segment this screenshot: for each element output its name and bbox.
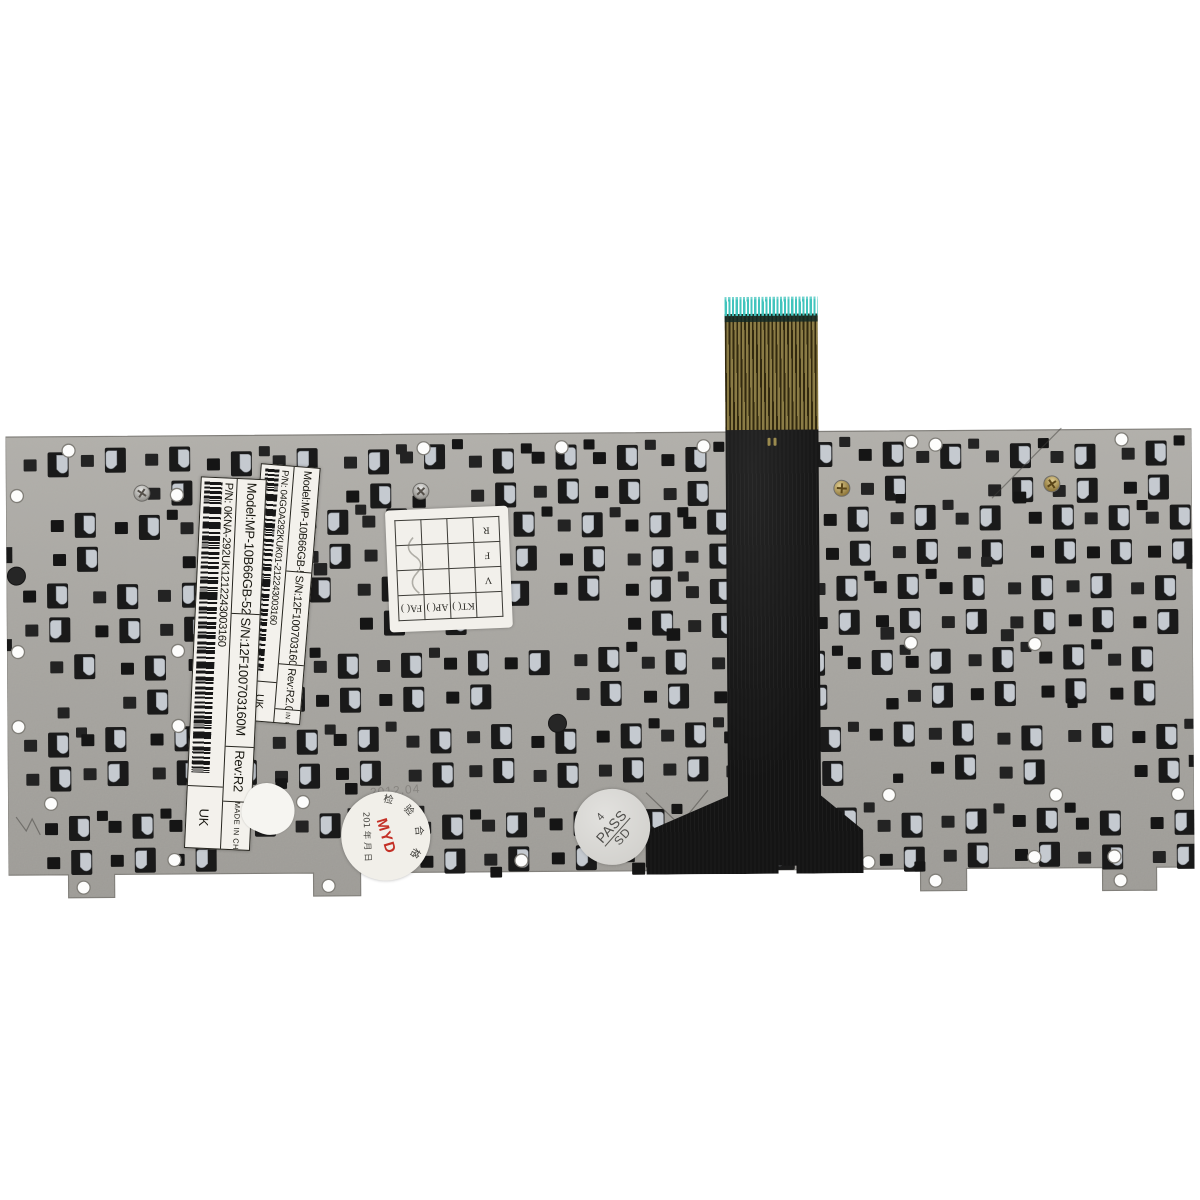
plate-hole bbox=[10, 490, 23, 503]
square-cutout bbox=[550, 818, 563, 830]
key-hook-cutout bbox=[668, 683, 689, 708]
key-hook-cutout bbox=[649, 512, 670, 537]
square-cutout bbox=[167, 510, 178, 520]
square-cutout bbox=[583, 439, 594, 449]
screw bbox=[833, 480, 850, 497]
plate-hole bbox=[170, 488, 183, 501]
key-hook-cutout bbox=[584, 546, 605, 571]
square-cutout bbox=[1146, 512, 1159, 524]
square-cutout bbox=[931, 762, 944, 774]
square-cutout bbox=[81, 455, 94, 467]
square-cutout bbox=[908, 690, 921, 702]
square-cutout bbox=[644, 691, 657, 703]
key-hook-cutout bbox=[514, 512, 535, 537]
square-cutout bbox=[360, 618, 373, 630]
square-cutout bbox=[880, 854, 893, 866]
square-cutout bbox=[886, 698, 898, 709]
square-cutout bbox=[452, 439, 463, 449]
key-hook-cutout bbox=[107, 761, 128, 786]
key-hook-cutout bbox=[470, 684, 491, 709]
key-hook-cutout bbox=[119, 618, 140, 643]
key-hook-cutout bbox=[820, 727, 841, 752]
square-cutout bbox=[956, 513, 969, 525]
square-cutout bbox=[467, 731, 480, 743]
plate-hole bbox=[172, 719, 185, 732]
key-hook-cutout bbox=[1055, 539, 1076, 564]
square-cutout bbox=[593, 452, 606, 464]
region-code: UK bbox=[185, 786, 223, 849]
square-cutout bbox=[469, 765, 482, 777]
key-hook-cutout bbox=[1156, 724, 1177, 749]
plate-hole bbox=[171, 644, 184, 657]
square-cutout bbox=[839, 437, 850, 447]
key-hook-cutout bbox=[360, 761, 381, 786]
square-cutout bbox=[1153, 851, 1166, 863]
square-cutout bbox=[671, 804, 682, 814]
key-hook-cutout bbox=[582, 512, 603, 537]
key-hook-cutout bbox=[650, 577, 671, 602]
square-cutout bbox=[1076, 818, 1089, 830]
square-cutout bbox=[95, 625, 108, 637]
key-hook-cutout bbox=[898, 574, 919, 599]
square-cutout bbox=[832, 646, 843, 656]
key-hook-cutout bbox=[1148, 474, 1169, 499]
made-in-text: MADE IN CHINA bbox=[275, 709, 301, 724]
key-hook-cutout bbox=[902, 813, 923, 838]
plate-hole bbox=[1115, 433, 1128, 446]
key-hook-cutout bbox=[310, 577, 331, 602]
cable-connector-teal-fingers bbox=[725, 296, 818, 316]
plate-hole bbox=[697, 440, 710, 453]
square-cutout bbox=[158, 590, 171, 602]
square-cutout bbox=[84, 768, 97, 780]
key-hook-cutout bbox=[848, 507, 869, 532]
square-cutout bbox=[325, 724, 336, 734]
square-cutout bbox=[1085, 512, 1098, 524]
square-cutout bbox=[661, 730, 674, 742]
key-hook-cutout bbox=[1039, 842, 1060, 867]
key-hook-cutout bbox=[980, 505, 1001, 530]
key-hook-cutout bbox=[1024, 759, 1045, 784]
square-cutout bbox=[981, 557, 992, 567]
square-cutout bbox=[531, 736, 544, 748]
key-hook-cutout bbox=[619, 479, 640, 504]
square-cutout bbox=[47, 857, 60, 869]
key-hook-cutout bbox=[117, 584, 138, 609]
square-cutout bbox=[859, 449, 872, 461]
square-cutout bbox=[1013, 815, 1026, 827]
square-cutout bbox=[1031, 546, 1044, 558]
key-hook-cutout bbox=[621, 723, 642, 748]
square-cutout bbox=[685, 551, 698, 563]
key-hook-cutout bbox=[688, 481, 709, 506]
square-cutout bbox=[667, 628, 681, 641]
key-hook-cutout bbox=[953, 721, 974, 746]
square-cutout bbox=[346, 491, 359, 503]
plate-hole bbox=[1114, 874, 1127, 887]
square-cutout bbox=[1124, 482, 1137, 494]
square-cutout bbox=[471, 490, 484, 502]
plate-hole bbox=[882, 788, 895, 801]
square-cutout bbox=[24, 459, 37, 471]
square-cutout bbox=[628, 553, 641, 565]
square-cutout bbox=[597, 731, 610, 743]
key-hook-cutout bbox=[338, 654, 359, 679]
square-cutout bbox=[160, 808, 171, 818]
key-hook-cutout bbox=[430, 728, 451, 753]
square-cutout bbox=[93, 591, 106, 603]
key-hook-cutout bbox=[444, 849, 465, 874]
square-cutout bbox=[1078, 852, 1091, 864]
key-hook-cutout bbox=[1032, 575, 1053, 600]
square-cutout bbox=[944, 850, 957, 862]
square-cutout bbox=[123, 697, 136, 709]
square-cutout bbox=[929, 728, 942, 740]
plate-hole bbox=[515, 854, 528, 867]
key-hook-cutout bbox=[50, 767, 71, 792]
square-cutout bbox=[893, 774, 903, 783]
key-hook-cutout bbox=[370, 483, 391, 508]
square-cutout bbox=[554, 583, 567, 595]
square-cutout bbox=[864, 802, 875, 812]
square-cutout bbox=[595, 486, 608, 498]
key-hook-cutout bbox=[169, 446, 190, 471]
square-cutout bbox=[111, 855, 124, 867]
key-hook-cutout bbox=[105, 727, 126, 752]
square-cutout bbox=[1087, 546, 1100, 558]
square-cutout bbox=[490, 867, 502, 878]
square-cutout bbox=[993, 803, 1004, 813]
square-cutout bbox=[150, 733, 163, 745]
square-cutout bbox=[81, 734, 94, 746]
key-hook-cutout bbox=[69, 816, 90, 841]
square-cutout bbox=[649, 718, 660, 728]
square-cutout bbox=[484, 854, 497, 866]
key-hook-cutout bbox=[147, 689, 168, 714]
square-cutout bbox=[632, 863, 645, 875]
key-hook-cutout bbox=[468, 650, 489, 675]
square-cutout bbox=[1041, 686, 1054, 698]
square-cutout bbox=[712, 657, 725, 669]
plate-hole bbox=[168, 853, 181, 866]
square-cutout bbox=[362, 516, 375, 528]
cable-connector-gold-traces bbox=[725, 313, 819, 430]
square-cutout bbox=[678, 571, 689, 581]
square-cutout bbox=[541, 506, 552, 516]
key-hook-cutout bbox=[1093, 607, 1114, 632]
square-cutout bbox=[878, 820, 891, 832]
square-cutout bbox=[534, 807, 545, 817]
square-cutout bbox=[358, 584, 371, 596]
square-cutout bbox=[50, 661, 63, 673]
square-cutout bbox=[316, 695, 329, 707]
square-cutout bbox=[683, 517, 696, 529]
square-cutout bbox=[180, 522, 193, 534]
square-cutout bbox=[663, 764, 676, 776]
square-cutout bbox=[400, 451, 413, 463]
square-cutout bbox=[848, 657, 861, 669]
square-cutout bbox=[429, 648, 440, 658]
plate-hole bbox=[77, 881, 90, 894]
square-cutout bbox=[24, 740, 37, 752]
serial-number: S/N:12F100703160M bbox=[226, 614, 260, 748]
square-cutout bbox=[469, 456, 482, 468]
square-cutout bbox=[914, 861, 925, 871]
key-hook-cutout bbox=[145, 655, 166, 680]
square-cutout bbox=[336, 768, 349, 780]
plate-hole bbox=[905, 435, 918, 448]
key-hook-cutout bbox=[601, 681, 622, 706]
pass-stamp: 4 PASS SD bbox=[574, 789, 651, 866]
square-cutout bbox=[574, 654, 587, 666]
square-cutout bbox=[870, 729, 883, 741]
square-cutout bbox=[51, 520, 64, 532]
plate-hole bbox=[1028, 850, 1041, 863]
stamp-date-line: 201 年 月 日 bbox=[360, 812, 373, 862]
square-cutout bbox=[599, 765, 612, 777]
key-hook-cutout bbox=[1109, 505, 1130, 530]
plate-hole bbox=[62, 444, 75, 457]
square-cutout bbox=[642, 657, 655, 669]
square-cutout bbox=[942, 616, 955, 628]
key-hook-cutout bbox=[836, 576, 857, 601]
square-cutout bbox=[1122, 448, 1135, 460]
square-cutout bbox=[314, 661, 327, 673]
square-cutout bbox=[1039, 652, 1052, 664]
key-hook-cutout bbox=[932, 683, 953, 708]
key-hook-cutout bbox=[493, 448, 514, 473]
key-hook-cutout bbox=[1053, 505, 1074, 530]
plate-hole bbox=[555, 441, 568, 454]
key-hook-cutout bbox=[930, 649, 951, 674]
key-hook-cutout bbox=[491, 724, 512, 749]
key-hook-cutout bbox=[75, 513, 96, 538]
square-cutout bbox=[334, 734, 347, 746]
plate-hole bbox=[904, 636, 917, 649]
square-cutout bbox=[997, 733, 1010, 745]
plate-hole bbox=[322, 879, 335, 892]
square-cutout bbox=[377, 660, 390, 672]
square-cutout bbox=[986, 450, 999, 462]
stamp-code: MYD bbox=[373, 816, 400, 856]
key-hook-cutout bbox=[74, 654, 95, 679]
square-cutout bbox=[1131, 582, 1144, 594]
round-inspection-stamp: 检 验 合 格 201 年 月 日 MYD bbox=[339, 790, 432, 883]
square-cutout bbox=[1068, 730, 1081, 742]
square-cutout bbox=[943, 500, 954, 510]
square-cutout bbox=[958, 547, 971, 559]
square-cutout bbox=[273, 737, 286, 749]
key-hook-cutout bbox=[966, 609, 987, 634]
square-cutout bbox=[941, 816, 954, 828]
square-cutout bbox=[534, 770, 547, 782]
square-cutout bbox=[365, 550, 378, 562]
key-hook-cutout bbox=[231, 451, 252, 476]
key-hook-cutout bbox=[1134, 680, 1155, 705]
key-hook-cutout bbox=[368, 449, 389, 474]
key-hook-cutout bbox=[529, 650, 550, 675]
square-cutout bbox=[968, 439, 979, 449]
square-cutout bbox=[505, 657, 518, 669]
key-hook-cutout bbox=[917, 539, 938, 564]
square-cutout bbox=[880, 627, 894, 640]
key-hook-cutout bbox=[1170, 504, 1191, 529]
plate-hole bbox=[929, 874, 942, 887]
square-cutout bbox=[874, 581, 887, 593]
key-hook-cutout bbox=[1074, 444, 1095, 469]
key-hook-cutout bbox=[617, 445, 638, 470]
square-cutout bbox=[259, 446, 270, 456]
square-cutout bbox=[558, 519, 571, 531]
square-cutout bbox=[23, 591, 36, 603]
square-cutout bbox=[891, 512, 904, 524]
square-cutout bbox=[1010, 616, 1023, 628]
key-hook-cutout bbox=[1090, 573, 1111, 598]
key-hook-cutout bbox=[1175, 810, 1195, 835]
plate-hole bbox=[1028, 637, 1041, 650]
square-cutout bbox=[58, 707, 70, 718]
key-hook-cutout bbox=[516, 546, 537, 571]
square-cutout bbox=[1184, 719, 1194, 729]
key-hook-cutout bbox=[968, 842, 989, 867]
square-cutout bbox=[97, 811, 108, 821]
key-hook-cutout bbox=[1159, 758, 1180, 783]
square-cutout bbox=[355, 505, 366, 515]
square-cutout bbox=[1091, 639, 1102, 649]
square-cutout bbox=[53, 554, 66, 566]
key-hook-cutout bbox=[883, 442, 904, 467]
key-hook-cutout bbox=[955, 754, 976, 779]
square-cutout bbox=[713, 717, 724, 727]
square-cutout bbox=[1108, 654, 1121, 666]
key-hook-cutout bbox=[707, 510, 728, 535]
square-cutout bbox=[406, 736, 419, 748]
square-cutout bbox=[45, 823, 58, 835]
square-cutout bbox=[626, 584, 639, 596]
plate-hole bbox=[12, 721, 25, 734]
key-hook-cutout bbox=[495, 482, 516, 507]
key-hook-cutout bbox=[493, 758, 514, 783]
square-cutout bbox=[940, 582, 953, 594]
key-hook-cutout bbox=[940, 444, 961, 469]
key-hook-cutout bbox=[196, 847, 217, 872]
square-cutout bbox=[446, 692, 459, 704]
key-hook-cutout bbox=[578, 576, 599, 601]
square-cutout bbox=[861, 483, 874, 495]
square-cutout bbox=[1008, 582, 1021, 594]
square-cutout bbox=[626, 642, 637, 652]
square-cutout bbox=[969, 654, 982, 666]
plate-hole bbox=[1171, 787, 1184, 800]
key-hook-cutout bbox=[403, 687, 424, 712]
key-hook-cutout bbox=[1037, 808, 1058, 833]
key-hook-cutout bbox=[1172, 538, 1193, 563]
stamp-art: 检 验 合 格 201 年 月 日 MYD bbox=[339, 790, 432, 883]
square-cutout bbox=[532, 452, 545, 464]
keyboard-board: 2012.04 Model:MP-10B66GB-5288 S/N:12F100… bbox=[0, 0, 1200, 1200]
key-hook-cutout bbox=[297, 730, 318, 755]
square-cutout bbox=[521, 443, 532, 453]
key-hook-cutout bbox=[1100, 810, 1121, 835]
square-cutout bbox=[645, 440, 656, 450]
key-hook-cutout bbox=[1146, 440, 1167, 465]
revision: Rev:R2.0 bbox=[276, 664, 304, 711]
key-hook-cutout bbox=[995, 681, 1016, 706]
square-cutout bbox=[1135, 765, 1148, 777]
square-cutout bbox=[470, 809, 481, 819]
plate-hole bbox=[417, 442, 430, 455]
ribbon-contact-dot bbox=[774, 438, 777, 446]
square-cutout bbox=[482, 820, 495, 832]
square-cutout bbox=[1013, 492, 1026, 504]
square-cutout bbox=[560, 553, 573, 565]
key-hook-cutout bbox=[839, 610, 860, 635]
key-hook-cutout bbox=[139, 515, 160, 540]
square-cutout bbox=[314, 563, 328, 575]
pass-stamp-text: 4 PASS SD bbox=[584, 799, 640, 855]
square-cutout bbox=[534, 486, 547, 498]
key-hook-cutout bbox=[442, 815, 463, 840]
square-cutout bbox=[906, 656, 919, 668]
key-hook-cutout bbox=[105, 448, 126, 473]
key-hook-cutout bbox=[822, 761, 843, 786]
key-hook-cutout bbox=[49, 617, 70, 642]
square-cutout bbox=[686, 586, 699, 598]
key-hook-cutout bbox=[320, 813, 341, 838]
key-hook-cutout bbox=[915, 505, 936, 530]
square-cutout bbox=[169, 820, 182, 832]
square-cutout bbox=[893, 546, 906, 558]
key-hook-cutout bbox=[964, 575, 985, 600]
qc-grid-sticker: KT( )AP( )FA( )VFR bbox=[385, 506, 513, 633]
key-hook-cutout bbox=[1155, 575, 1176, 600]
square-cutout bbox=[677, 507, 688, 517]
key-hook-cutout bbox=[965, 808, 986, 833]
key-hook-cutout bbox=[47, 583, 68, 608]
square-cutout bbox=[207, 458, 220, 470]
plate-hole bbox=[44, 797, 57, 810]
key-hook-cutout bbox=[850, 541, 871, 566]
key-hook-cutout bbox=[1111, 539, 1132, 564]
plate-hole bbox=[1108, 850, 1121, 863]
square-cutout bbox=[1148, 546, 1161, 558]
square-cutout bbox=[344, 457, 357, 469]
square-cutout bbox=[552, 852, 565, 864]
key-hook-cutout bbox=[558, 763, 579, 788]
square-cutout bbox=[153, 767, 166, 779]
square-cutout bbox=[876, 615, 889, 627]
square-cutout bbox=[160, 624, 173, 636]
key-hook-cutout bbox=[77, 547, 98, 572]
square-cutout bbox=[1137, 500, 1148, 510]
square-cutout bbox=[1065, 803, 1076, 813]
plate-hole bbox=[929, 438, 942, 451]
square-cutout bbox=[296, 821, 309, 833]
square-cutout bbox=[896, 494, 906, 503]
key-hook-cutout bbox=[48, 733, 69, 758]
key-hook-cutout bbox=[993, 647, 1014, 672]
model-number: Model:MP-10B66GB-5288 bbox=[232, 479, 266, 615]
square-cutout bbox=[1132, 731, 1145, 743]
square-cutout bbox=[1015, 849, 1028, 861]
square-cutout bbox=[577, 688, 590, 700]
key-hook-cutout bbox=[1034, 609, 1055, 634]
key-hook-cutout bbox=[1092, 723, 1113, 748]
key-hook-cutout bbox=[598, 647, 619, 672]
square-cutout bbox=[1151, 817, 1164, 829]
square-cutout bbox=[386, 722, 397, 732]
key-hook-cutout bbox=[71, 850, 92, 875]
